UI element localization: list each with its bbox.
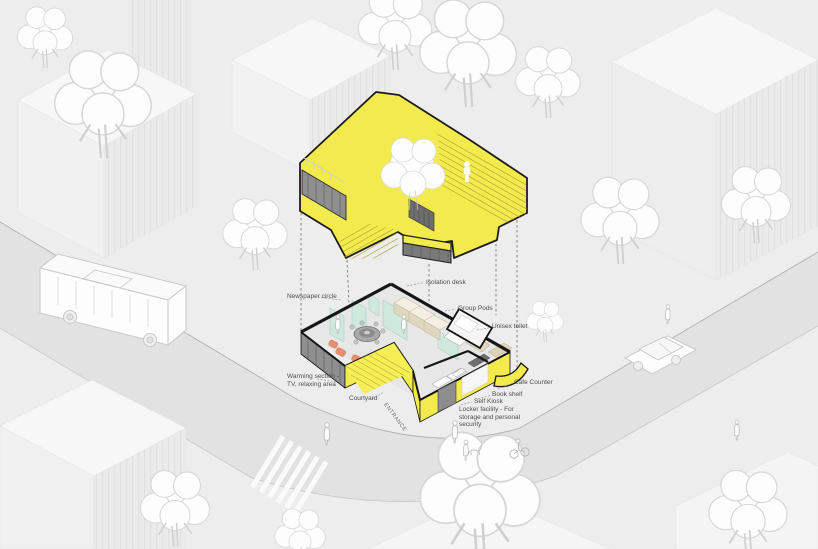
label-courtyard: Courtyard <box>349 395 378 403</box>
label-warming-section: Warming section - TV, relaxing area <box>287 373 349 388</box>
building-block-topright <box>612 8 818 280</box>
label-newspaper-circle: Newspaper circle <box>287 293 337 301</box>
label-isolation-desk: Isolation desk <box>426 279 466 287</box>
label-locker-facility: Locker facility - For storage and person… <box>459 406 527 429</box>
label-self-kiosk: Self Kiosk <box>474 398 503 406</box>
scene-illustration <box>0 0 818 549</box>
label-cafe-counter: Cafe Counter <box>514 379 553 387</box>
axonometric-diagram: Newspaper circle Isolation desk Group Po… <box>0 0 818 549</box>
label-unisex-toilet: Unisex toilet <box>492 323 527 331</box>
label-group-pods: Group Pods <box>458 305 493 313</box>
